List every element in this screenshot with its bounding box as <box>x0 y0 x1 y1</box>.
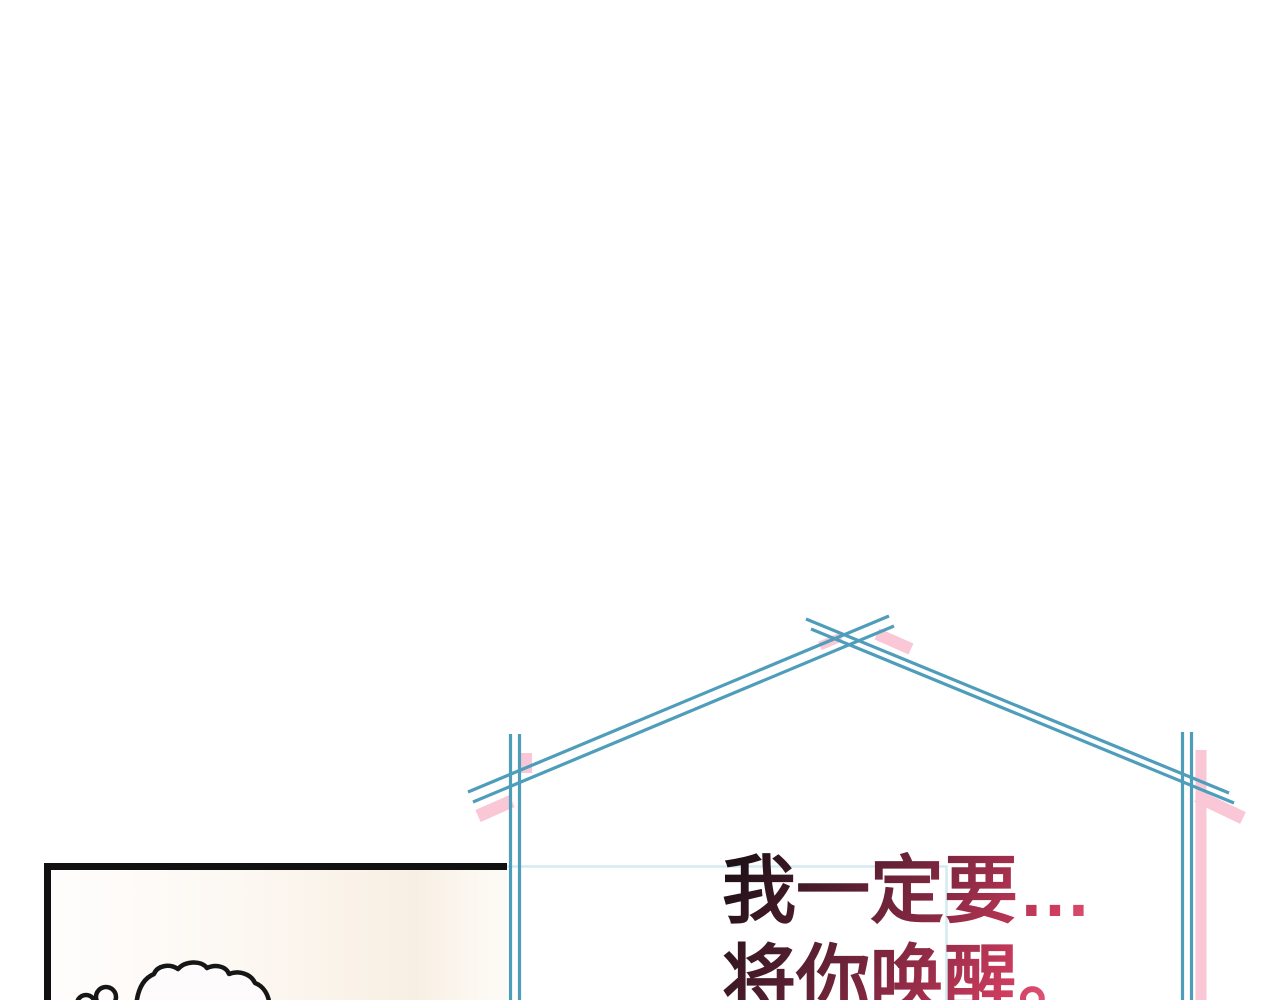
caption-text: 我一定要… 将你唤醒。 <box>722 846 1092 1000</box>
caption-line1: 我一定要… <box>722 846 1092 935</box>
cloud-outline-path <box>136 962 270 1000</box>
roof-right-edge <box>806 619 1234 803</box>
comic-panel <box>44 863 507 1000</box>
caption-line2: 将你唤醒。 <box>722 935 1092 1000</box>
roof-right-line-inner <box>811 629 1234 803</box>
comic-page: 我一定要… 将你唤醒。 <box>0 0 1280 1000</box>
roof-left-line-inner <box>473 626 894 802</box>
right-wall <box>1183 732 1192 1000</box>
roof-right-line-outer <box>806 619 1229 793</box>
left-eave-pink-accent <box>478 801 512 816</box>
apex-right-pink-accent <box>877 634 911 649</box>
roof-left-line-outer <box>468 616 889 792</box>
cloud-puff-ring <box>96 987 116 1000</box>
cloud-puff-small <box>77 995 95 1000</box>
cloud-drawing <box>51 870 507 1000</box>
